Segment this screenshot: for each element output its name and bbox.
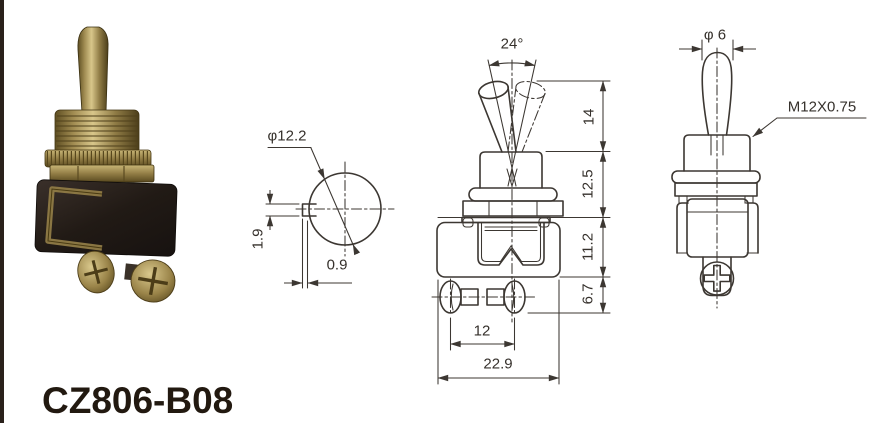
dim-terminal-height-label: 6.7 [581,284,596,305]
dim-throw-angle-label: 24° [501,37,524,52]
dim-thread-spec-label: M12X0.75 [788,100,856,115]
dim-key-height-label: 1.9 [251,229,266,250]
dim-overall-width-label: 22.9 [483,357,512,372]
datasheet-page: φ12.2 1.9 0.9 24° 14 12.5 11.2 6.7 12 22… [0,0,896,423]
product-code: CZ806-B08 [42,380,233,422]
dim-lever-diameter-label: φ 6 [704,28,726,43]
dim-key-depth-label: 0.9 [327,258,348,273]
dim-screw-spacing-label: 12 [474,324,491,339]
dim-top-diameter-label: φ12.2 [268,129,307,144]
dim-bushing-height-label: 12.5 [581,169,596,198]
dim-body-height-label: 11.2 [581,233,596,261]
side-view-drawing [672,40,866,308]
dim-lever-height-label: 14 [582,109,597,126]
dimension-drawing [0,0,896,423]
